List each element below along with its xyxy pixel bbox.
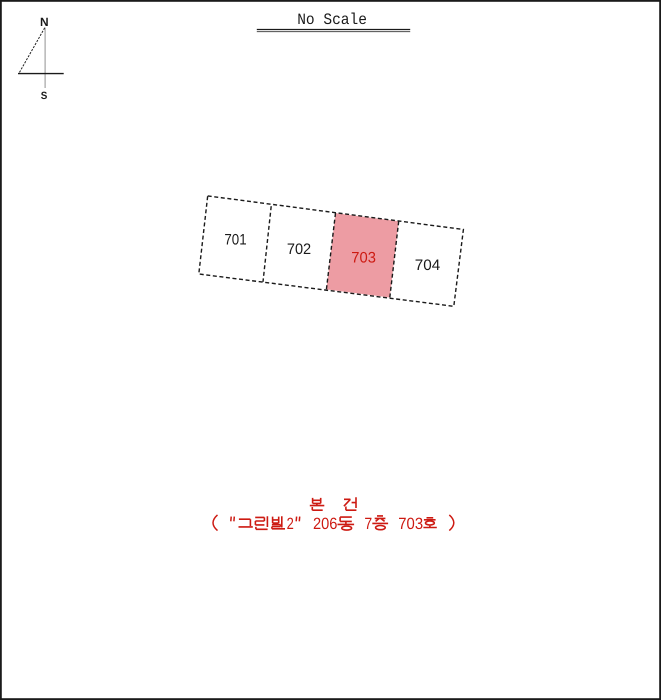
svg-text:S: S — [41, 90, 48, 102]
svg-text:7: 7 — [364, 515, 372, 533]
svg-text:704: 704 — [415, 257, 440, 274]
svg-text:703: 703 — [398, 515, 423, 533]
svg-text:2: 2 — [287, 515, 294, 533]
svg-text:206: 206 — [313, 515, 337, 533]
svg-text:No Scale: No Scale — [297, 11, 367, 29]
svg-text:N: N — [40, 15, 49, 29]
svg-text:703: 703 — [351, 250, 376, 267]
svg-text:702: 702 — [287, 241, 311, 258]
svg-text:701: 701 — [224, 232, 246, 249]
